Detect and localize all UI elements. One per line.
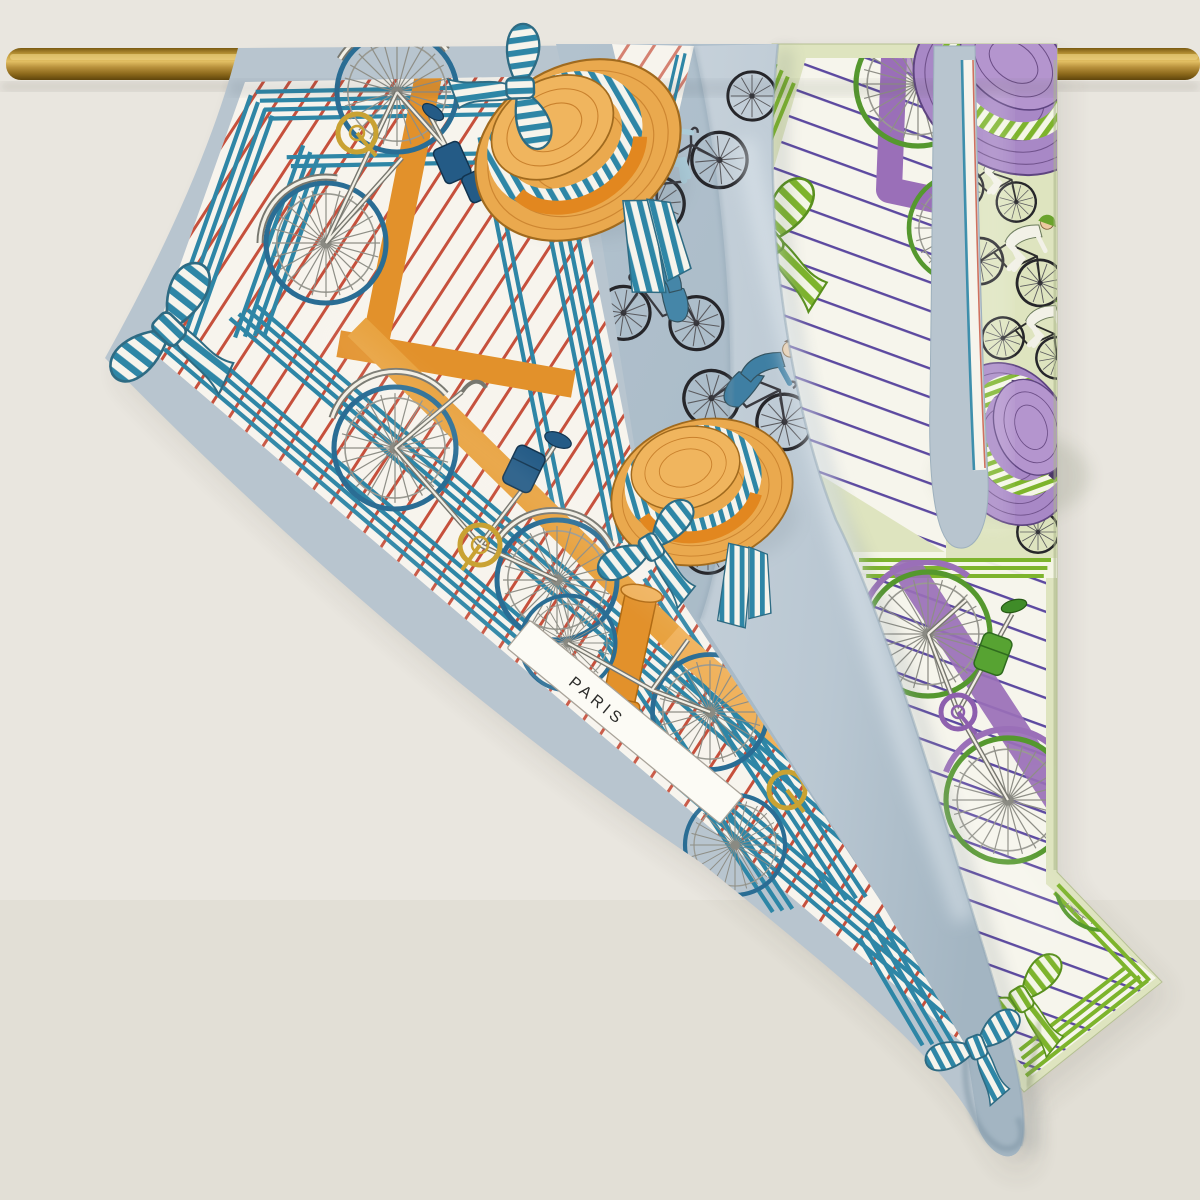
scarf-product-photo: PARIS (0, 0, 1200, 1200)
rod-shadow-right (1050, 82, 1200, 91)
rod-shadow-left (0, 82, 245, 91)
scene-canvas: PARIS (0, 0, 1200, 1200)
